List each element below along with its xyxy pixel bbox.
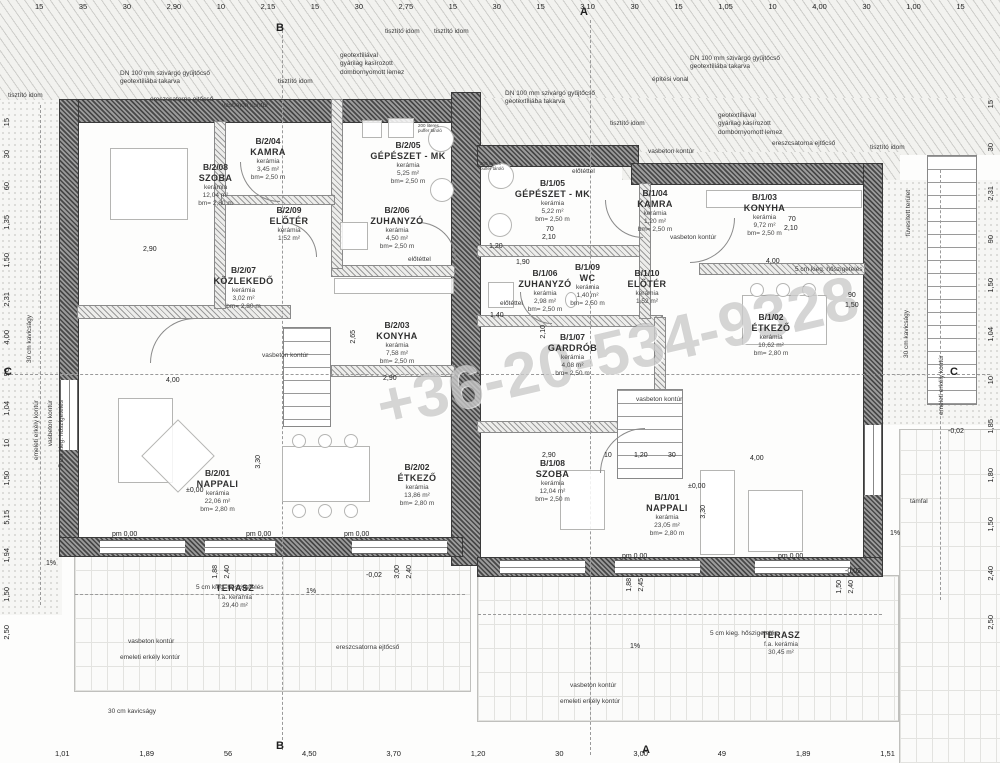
dimension-value: 30 bbox=[355, 2, 363, 11]
plan-shape bbox=[332, 266, 454, 276]
plan-shape bbox=[205, 540, 275, 554]
room-id: B/1/02 bbox=[726, 312, 816, 323]
dimension-label: -0,02 bbox=[366, 572, 382, 579]
room-height: bm= 2,50 m bbox=[352, 243, 442, 251]
dimension-value: 2,31 bbox=[2, 292, 11, 307]
dimension-label: pm 0,00 bbox=[112, 531, 137, 538]
plan-shape bbox=[40, 105, 41, 605]
room-area: 10,62 m² bbox=[726, 342, 816, 350]
room-area: 12,04 m² bbox=[168, 192, 263, 200]
dimension-label: 1,88 bbox=[212, 565, 219, 579]
dimension-value: 60 bbox=[2, 182, 11, 190]
dimension-label: 1,20 bbox=[634, 452, 648, 459]
dimension-label: 2,10 bbox=[784, 225, 798, 232]
annotation-text: előtéttel bbox=[500, 300, 523, 308]
dimension-row-top: 1535302,90102,1515302,751530153,1030151,… bbox=[35, 2, 965, 11]
room-label: B/1/04 KAMRA kerámia 1,20 m² bm= 2,50 m bbox=[615, 188, 695, 234]
annotation-text: 5 cm kieg. hőszigetelés bbox=[710, 630, 778, 638]
dimension-value: 3,70 bbox=[386, 749, 401, 758]
room-material: kerámia bbox=[372, 484, 462, 492]
dimension-value: 1,50 bbox=[2, 471, 11, 486]
annotation-text: tisztító idom bbox=[278, 78, 313, 86]
room-height: bm= 2,80 m bbox=[168, 200, 263, 208]
room-label: B/1/08 SZOBA kerámia 12,04 m² bm= 2,50 m bbox=[510, 458, 595, 504]
room-area: 22,06 m² bbox=[170, 498, 265, 506]
plan-shape bbox=[900, 430, 1000, 763]
plan-shape bbox=[344, 434, 358, 448]
dimension-value: 30 bbox=[630, 2, 638, 11]
room-label: B/2/01 NAPPALI kerámia 22,06 m² bm= 2,80… bbox=[170, 468, 265, 514]
room-label: B/1/09 WC kerámia 1,40 m² bm= 2,50 m bbox=[560, 262, 615, 308]
dimension-value: 1,04 bbox=[2, 401, 11, 416]
annotation-text: tisztító idom bbox=[385, 28, 420, 36]
dimension-label: 70 bbox=[788, 216, 796, 223]
room-area: 1,52 m² bbox=[250, 235, 328, 243]
dimension-value: 1,35 bbox=[2, 215, 11, 230]
room-label: B/2/02 ÉTKEZŐ kerámia 13,86 m² bm= 2,80 … bbox=[372, 462, 462, 508]
dimension-value: 1,04 bbox=[986, 327, 995, 342]
plan-shape bbox=[292, 504, 306, 518]
dimension-label: 1,40 bbox=[490, 312, 504, 319]
annotation-text: támfal bbox=[910, 498, 928, 506]
dimension-value: 15 bbox=[536, 2, 544, 11]
room-area: 4,50 m² bbox=[352, 235, 442, 243]
annotation-text: emeleti erkély kontúr bbox=[120, 654, 180, 662]
dimension-value: 10 bbox=[768, 2, 776, 11]
room-id: B/1/09 bbox=[560, 262, 615, 273]
room-height: bm= 2,50 m bbox=[358, 178, 458, 186]
room-name: KONYHA bbox=[352, 331, 442, 342]
room-name: KÖZLEKEDŐ bbox=[196, 276, 291, 287]
plan-shape bbox=[292, 434, 306, 448]
dimension-label: 2,10 bbox=[542, 234, 556, 241]
annotation-text: 5 cm kieg. hőszigetelés bbox=[795, 266, 863, 274]
room-name: SZOBA bbox=[510, 469, 595, 480]
room-area: 23,05 m² bbox=[622, 522, 712, 530]
room-id: B/2/09 bbox=[250, 205, 328, 216]
annotation-text: 30 cm kavicságy bbox=[108, 708, 156, 716]
room-material: kerámia bbox=[228, 158, 308, 166]
dimension-label: 2,90 bbox=[542, 452, 556, 459]
dimension-value: 1,89 bbox=[139, 749, 154, 758]
dimension-value: 35 bbox=[79, 2, 87, 11]
dimension-value: 2,50 bbox=[986, 615, 995, 630]
annotation-text: tisztító idom bbox=[610, 120, 645, 128]
dimension-label: 2,65 bbox=[350, 330, 357, 344]
room-name: KAMRA bbox=[228, 147, 308, 158]
plan-shape bbox=[352, 540, 447, 554]
dimension-label: 1,90 bbox=[516, 259, 530, 266]
annotation-text: füvesített terület bbox=[905, 190, 913, 236]
room-id: B/1/04 bbox=[615, 188, 695, 199]
annotation-text: geotextíliával gyárilag kasírozott dombo… bbox=[340, 52, 404, 77]
room-height: bm= 2,80 m bbox=[726, 350, 816, 358]
plan-shape bbox=[60, 100, 78, 556]
dimension-value: 2,40 bbox=[986, 566, 995, 581]
room-id: B/1/01 bbox=[622, 492, 712, 503]
room-material: kerámia bbox=[612, 290, 682, 298]
dimension-label: 3,00 bbox=[394, 565, 401, 579]
room-name: ELŐTÉR bbox=[612, 279, 682, 290]
room-name: ÉTKEZŐ bbox=[372, 473, 462, 484]
annotation-text: vasbeton kontúr bbox=[636, 396, 682, 404]
room-height: bm= 2,50 m bbox=[352, 358, 442, 366]
annotation-text: építési vonal bbox=[652, 76, 689, 84]
room-material: f.a. kerámia bbox=[190, 594, 280, 602]
plan-shape bbox=[632, 164, 882, 184]
dimension-value: 2,50 bbox=[2, 625, 11, 640]
annotation-text: 30 cm kavicságy bbox=[903, 310, 911, 358]
dimension-label: 4,00 bbox=[750, 455, 764, 462]
room-area: 1,52 m² bbox=[612, 298, 682, 306]
room-label: B/1/07 GARDRÓB kerámia 4,08 m² bm= 2,50 … bbox=[530, 332, 615, 378]
room-name: ELŐTÉR bbox=[250, 216, 328, 227]
annotation-text: vasbeton kontúr bbox=[670, 234, 716, 242]
annotation-text: vasbeton kontúr bbox=[648, 148, 694, 156]
annotation-text: DN 100 mm szivárgó gyűjtőcső geotextíliá… bbox=[505, 90, 595, 107]
room-material: kerámia bbox=[196, 287, 291, 295]
dimension-label: 2,90 bbox=[383, 375, 397, 382]
dimension-label: ±0,00 bbox=[688, 483, 705, 490]
room-height: bm= 2,50 m bbox=[530, 370, 615, 378]
dimension-label: pm 0,00 bbox=[344, 531, 369, 538]
room-material: f.a. kerámia bbox=[736, 641, 826, 649]
plan-shape bbox=[388, 118, 414, 138]
dimension-value: 15 bbox=[311, 2, 319, 11]
annotation-text: 5 cm kieg. hőszigetelés bbox=[196, 584, 264, 592]
plan-shape bbox=[150, 318, 195, 363]
room-material: kerámia bbox=[250, 227, 328, 235]
dimension-value: 30 bbox=[493, 2, 501, 11]
annotation-text: geotextíliával gyárilag kasírozott dombo… bbox=[718, 112, 782, 137]
room-material: kerámia bbox=[352, 342, 442, 350]
floor-plan-canvas: +36-20-534-9328 B/2/08 SZOBA kerámia 12,… bbox=[0, 0, 1000, 763]
room-label: B/2/03 KONYHA kerámia 7,58 m² bm= 2,50 m bbox=[352, 320, 442, 366]
room-name: GARDRÓB bbox=[530, 343, 615, 354]
room-area: 4,08 m² bbox=[530, 362, 615, 370]
dimension-label: 1% bbox=[630, 643, 640, 650]
dimension-label: 70 bbox=[546, 226, 554, 233]
room-material: kerámia bbox=[726, 334, 816, 342]
dimension-value: 10 bbox=[2, 439, 11, 447]
room-area: 1,40 m² bbox=[560, 292, 615, 300]
dimension-value: 30 bbox=[986, 143, 995, 151]
room-area: 12,04 m² bbox=[510, 488, 595, 496]
dimension-value: 30 bbox=[2, 150, 11, 158]
dimension-label: 90 bbox=[848, 292, 856, 299]
dimension-label: 2,90 bbox=[143, 246, 157, 253]
room-id: B/2/01 bbox=[170, 468, 265, 479]
room-label: B/2/07 KÖZLEKEDŐ kerámia 3,02 m² bm= 2,8… bbox=[196, 265, 291, 311]
plan-shape bbox=[282, 446, 370, 502]
room-name: ÉTKEZŐ bbox=[726, 323, 816, 334]
annotation-text: emeleti erkély kontúr bbox=[560, 698, 620, 706]
room-id: B/2/06 bbox=[352, 205, 442, 216]
plan-shape bbox=[282, 25, 283, 750]
dimension-label: 1,20 bbox=[489, 243, 503, 250]
room-label: B/1/10 ELŐTÉR kerámia 1,52 m² bbox=[612, 268, 682, 306]
room-name: NAPPALI bbox=[622, 503, 712, 514]
room-height: bm= 2,80 m bbox=[622, 530, 712, 538]
plan-shape bbox=[284, 328, 330, 426]
dimension-label: 1,50 bbox=[836, 580, 843, 594]
room-id: B/1/05 bbox=[500, 178, 605, 189]
plan-shape bbox=[344, 504, 358, 518]
annotation-text: vasbeton kontúr bbox=[262, 352, 308, 360]
annotation-text: emeleti erkély kontúr bbox=[938, 355, 946, 415]
dimension-value: 2,90 bbox=[167, 2, 182, 11]
room-name: GÉPÉSZET - MK bbox=[358, 151, 458, 162]
dimension-label: pm 0,00 bbox=[246, 531, 271, 538]
dimension-value: 30 bbox=[123, 2, 131, 11]
dimension-label: 10 bbox=[604, 452, 612, 459]
annotation-text: DN 100 mm szivárgó gyűjtőcső geotextíliá… bbox=[690, 55, 780, 72]
dimension-label: 4,00 bbox=[766, 258, 780, 265]
dimension-value: 30 bbox=[862, 2, 870, 11]
room-id: B/1/03 bbox=[722, 192, 807, 203]
plan-shape bbox=[748, 490, 803, 552]
room-area: 1,20 m² bbox=[615, 218, 695, 226]
room-height: bm= 2,80 m bbox=[170, 506, 265, 514]
dimension-label: 3,30 bbox=[700, 505, 707, 519]
room-id: B/2/03 bbox=[352, 320, 442, 331]
plan-shape bbox=[864, 425, 882, 495]
room-label: B/1/02 ÉTKEZŐ kerámia 10,62 m² bm= 2,80 … bbox=[726, 312, 816, 358]
room-id: B/2/07 bbox=[196, 265, 291, 276]
room-name: ZUHANYZÓ bbox=[352, 216, 442, 227]
annotation-text: emeleti erkély kontúr bbox=[33, 400, 41, 460]
dimension-value: 4,00 bbox=[812, 2, 827, 11]
dimension-value: 30 bbox=[555, 749, 563, 758]
dimension-column-right: 15302,31901,501,04101,851,801,502,402,50 bbox=[986, 100, 995, 630]
dimension-value: 1,01 bbox=[55, 749, 70, 758]
room-area: 3,02 m² bbox=[196, 295, 291, 303]
plan-shape bbox=[362, 120, 382, 138]
room-area: 7,58 m² bbox=[352, 350, 442, 358]
annotation-text: DN 100 mm szivárgó gyűjtőcső geotextíliá… bbox=[120, 70, 210, 87]
room-material: kerámia bbox=[170, 490, 265, 498]
dimension-value: 90 bbox=[986, 235, 995, 243]
dimension-label: 1% bbox=[890, 530, 900, 537]
plan-shape bbox=[864, 164, 882, 566]
section-marker: B bbox=[276, 22, 284, 34]
dimension-value: 15 bbox=[956, 2, 964, 11]
plan-shape bbox=[755, 560, 850, 574]
dimension-label: 4,00 bbox=[166, 377, 180, 384]
room-name: KAMRA bbox=[615, 199, 695, 210]
dimension-label: 3,30 bbox=[255, 455, 262, 469]
plan-shape bbox=[318, 504, 332, 518]
annotation-text: 30 cm kavicságy bbox=[26, 315, 34, 363]
room-material: kerámia bbox=[560, 284, 615, 292]
dimension-label: ±0,00 bbox=[186, 487, 203, 494]
dimension-value: 15 bbox=[35, 2, 43, 11]
room-area: 5,22 m² bbox=[500, 208, 605, 216]
room-id: B/1/10 bbox=[612, 268, 682, 279]
dimension-value: 2,75 bbox=[399, 2, 414, 11]
dimension-value: 3,00 bbox=[633, 749, 648, 758]
annotation-text: ereszcsatorna ejtőcső bbox=[150, 96, 213, 104]
dimension-value: 5,15 bbox=[2, 510, 11, 525]
dimension-label: pm 0,00 bbox=[778, 553, 803, 560]
dimension-value: 1,89 bbox=[796, 749, 811, 758]
dimension-value: 15 bbox=[986, 100, 995, 108]
annotation-text: ereszcsatorna ejtőcső bbox=[772, 140, 835, 148]
dimension-value: 1,50 bbox=[2, 587, 11, 602]
dimension-value: 1,50 bbox=[986, 517, 995, 532]
annotation-text: tisztító idom bbox=[8, 92, 43, 100]
room-name: KONYHA bbox=[722, 203, 807, 214]
dimension-row-bottom: 1,011,89564,503,701,20303,00491,891,51 bbox=[55, 749, 895, 758]
dimension-label: 1% bbox=[306, 588, 316, 595]
room-area: 13,86 m² bbox=[372, 492, 462, 500]
room-id: B/2/05 bbox=[358, 140, 458, 151]
dimension-label: pm 0,00 bbox=[622, 553, 647, 560]
dimension-label: 1,88 bbox=[626, 578, 633, 592]
annotation-text: előtéttel bbox=[572, 168, 595, 176]
plan-shape bbox=[318, 434, 332, 448]
room-label: B/2/06 ZUHANYZÓ kerámia 4,50 m² bm= 2,50… bbox=[352, 205, 442, 251]
dimension-value: 15 bbox=[674, 2, 682, 11]
annotation-text: vasbeton kontúr bbox=[222, 102, 268, 110]
dimension-value: 1,50 bbox=[986, 278, 995, 293]
room-name: GÉPÉSZET - MK bbox=[500, 189, 605, 200]
room-area: 3,45 m² bbox=[228, 166, 308, 174]
dimension-value: 4,50 bbox=[302, 749, 317, 758]
room-name: WC bbox=[560, 273, 615, 284]
room-area: 5,25 m² bbox=[358, 170, 458, 178]
dimension-value: 3,10 bbox=[580, 2, 595, 11]
room-id: B/1/08 bbox=[510, 458, 595, 469]
room-material: kerámia bbox=[530, 354, 615, 362]
dimension-label: -0,02 bbox=[948, 428, 964, 435]
dimension-value: 1,00 bbox=[906, 2, 921, 11]
dimension-label: 1,50 bbox=[845, 302, 859, 309]
room-material: kerámia bbox=[500, 200, 605, 208]
plan-shape bbox=[600, 428, 645, 473]
room-height: bm= 2,80 m bbox=[372, 500, 462, 508]
dimension-value: 1,80 bbox=[986, 468, 995, 483]
room-label: B/2/09 ELŐTÉR kerámia 1,52 m² bbox=[250, 205, 328, 243]
annotation-text: 5 cm kieg. hőszigetelés bbox=[58, 400, 66, 468]
dimension-label: 2,40 bbox=[224, 565, 231, 579]
plan-shape bbox=[615, 560, 700, 574]
room-material: kerámia bbox=[352, 227, 442, 235]
dimension-value: 49 bbox=[718, 749, 726, 758]
room-material: kerámia bbox=[168, 184, 263, 192]
plan-shape bbox=[478, 614, 882, 615]
dimension-label: 2,10 bbox=[540, 325, 547, 339]
dimension-value: 90 bbox=[2, 368, 11, 376]
dimension-value: 10 bbox=[217, 2, 225, 11]
room-material: kerámia bbox=[358, 162, 458, 170]
room-label: B/2/05 GÉPÉSZET - MK kerámia 5,25 m² bm=… bbox=[358, 140, 458, 186]
annotation-text: előtéttel bbox=[408, 256, 431, 264]
annotation-text: ereszcsatorna ejtőcső bbox=[336, 644, 399, 652]
dimension-label: 2,40 bbox=[848, 580, 855, 594]
room-area: 29,40 m² bbox=[190, 602, 280, 610]
dimension-label: 30 bbox=[668, 452, 676, 459]
dimension-value: 15 bbox=[449, 2, 457, 11]
room-label: B/2/04 KAMRA kerámia 3,45 m² bm= 2,50 m bbox=[228, 136, 308, 182]
annotation-text: vasbeton kontúr bbox=[128, 638, 174, 646]
annotation-text: 200 literes puffer tároló bbox=[480, 162, 504, 172]
room-id: B/2/02 bbox=[372, 462, 462, 473]
room-height: bm= 2,50 m bbox=[500, 216, 605, 224]
annotation-text: vasbeton kontúr bbox=[570, 682, 616, 690]
annotation-text: vasbeton kontúr bbox=[47, 400, 55, 446]
section-marker: C bbox=[950, 366, 958, 378]
dimension-value: 1,94 bbox=[2, 548, 11, 563]
room-material: kerámia bbox=[622, 514, 712, 522]
room-label: B/1/05 GÉPÉSZET - MK kerámia 5,22 m² bm=… bbox=[500, 178, 605, 224]
room-name: NAPPALI bbox=[170, 479, 265, 490]
room-height: bm= 2,80 m bbox=[196, 303, 291, 311]
room-height: bm= 2,50 m bbox=[228, 174, 308, 182]
dimension-value: 1,20 bbox=[471, 749, 486, 758]
dimension-value: 10 bbox=[986, 376, 995, 384]
dimension-value: 1,05 bbox=[718, 2, 733, 11]
dimension-label: 2,40 bbox=[406, 565, 413, 579]
dimension-value: 1,85 bbox=[986, 419, 995, 434]
dimension-value: 2,31 bbox=[986, 186, 995, 201]
annotation-text: tisztító idom bbox=[434, 28, 469, 36]
annotation-text: 200 literes puffer tároló bbox=[418, 124, 442, 134]
dimension-label: 2,45 bbox=[638, 578, 645, 592]
dimension-value: 1,50 bbox=[2, 253, 11, 268]
room-area: 30,45 m² bbox=[736, 649, 826, 657]
room-height: bm= 2,50 m bbox=[560, 300, 615, 308]
room-label: B/1/01 NAPPALI kerámia 23,05 m² bm= 2,80… bbox=[622, 492, 712, 538]
room-material: kerámia bbox=[615, 210, 695, 218]
dimension-value: 56 bbox=[224, 749, 232, 758]
dimension-value: 1,51 bbox=[880, 749, 895, 758]
plan-shape bbox=[334, 278, 454, 294]
plan-shape bbox=[500, 560, 585, 574]
dimension-label: -0,02 bbox=[845, 568, 861, 575]
dimension-column-left: 1530601,351,502,314,00901,04101,505,151,… bbox=[2, 118, 11, 640]
dimension-value: 2,15 bbox=[261, 2, 276, 11]
plan-shape bbox=[478, 576, 898, 721]
dimension-label: 1% bbox=[46, 560, 56, 567]
room-material: kerámia bbox=[510, 480, 595, 488]
annotation-text: tisztító idom bbox=[870, 144, 905, 152]
dimension-value: 4,00 bbox=[2, 330, 11, 345]
dimension-value: 15 bbox=[2, 118, 11, 126]
room-height: bm= 2,50 m bbox=[510, 496, 595, 504]
room-id: B/2/04 bbox=[228, 136, 308, 147]
plan-shape bbox=[100, 540, 185, 554]
